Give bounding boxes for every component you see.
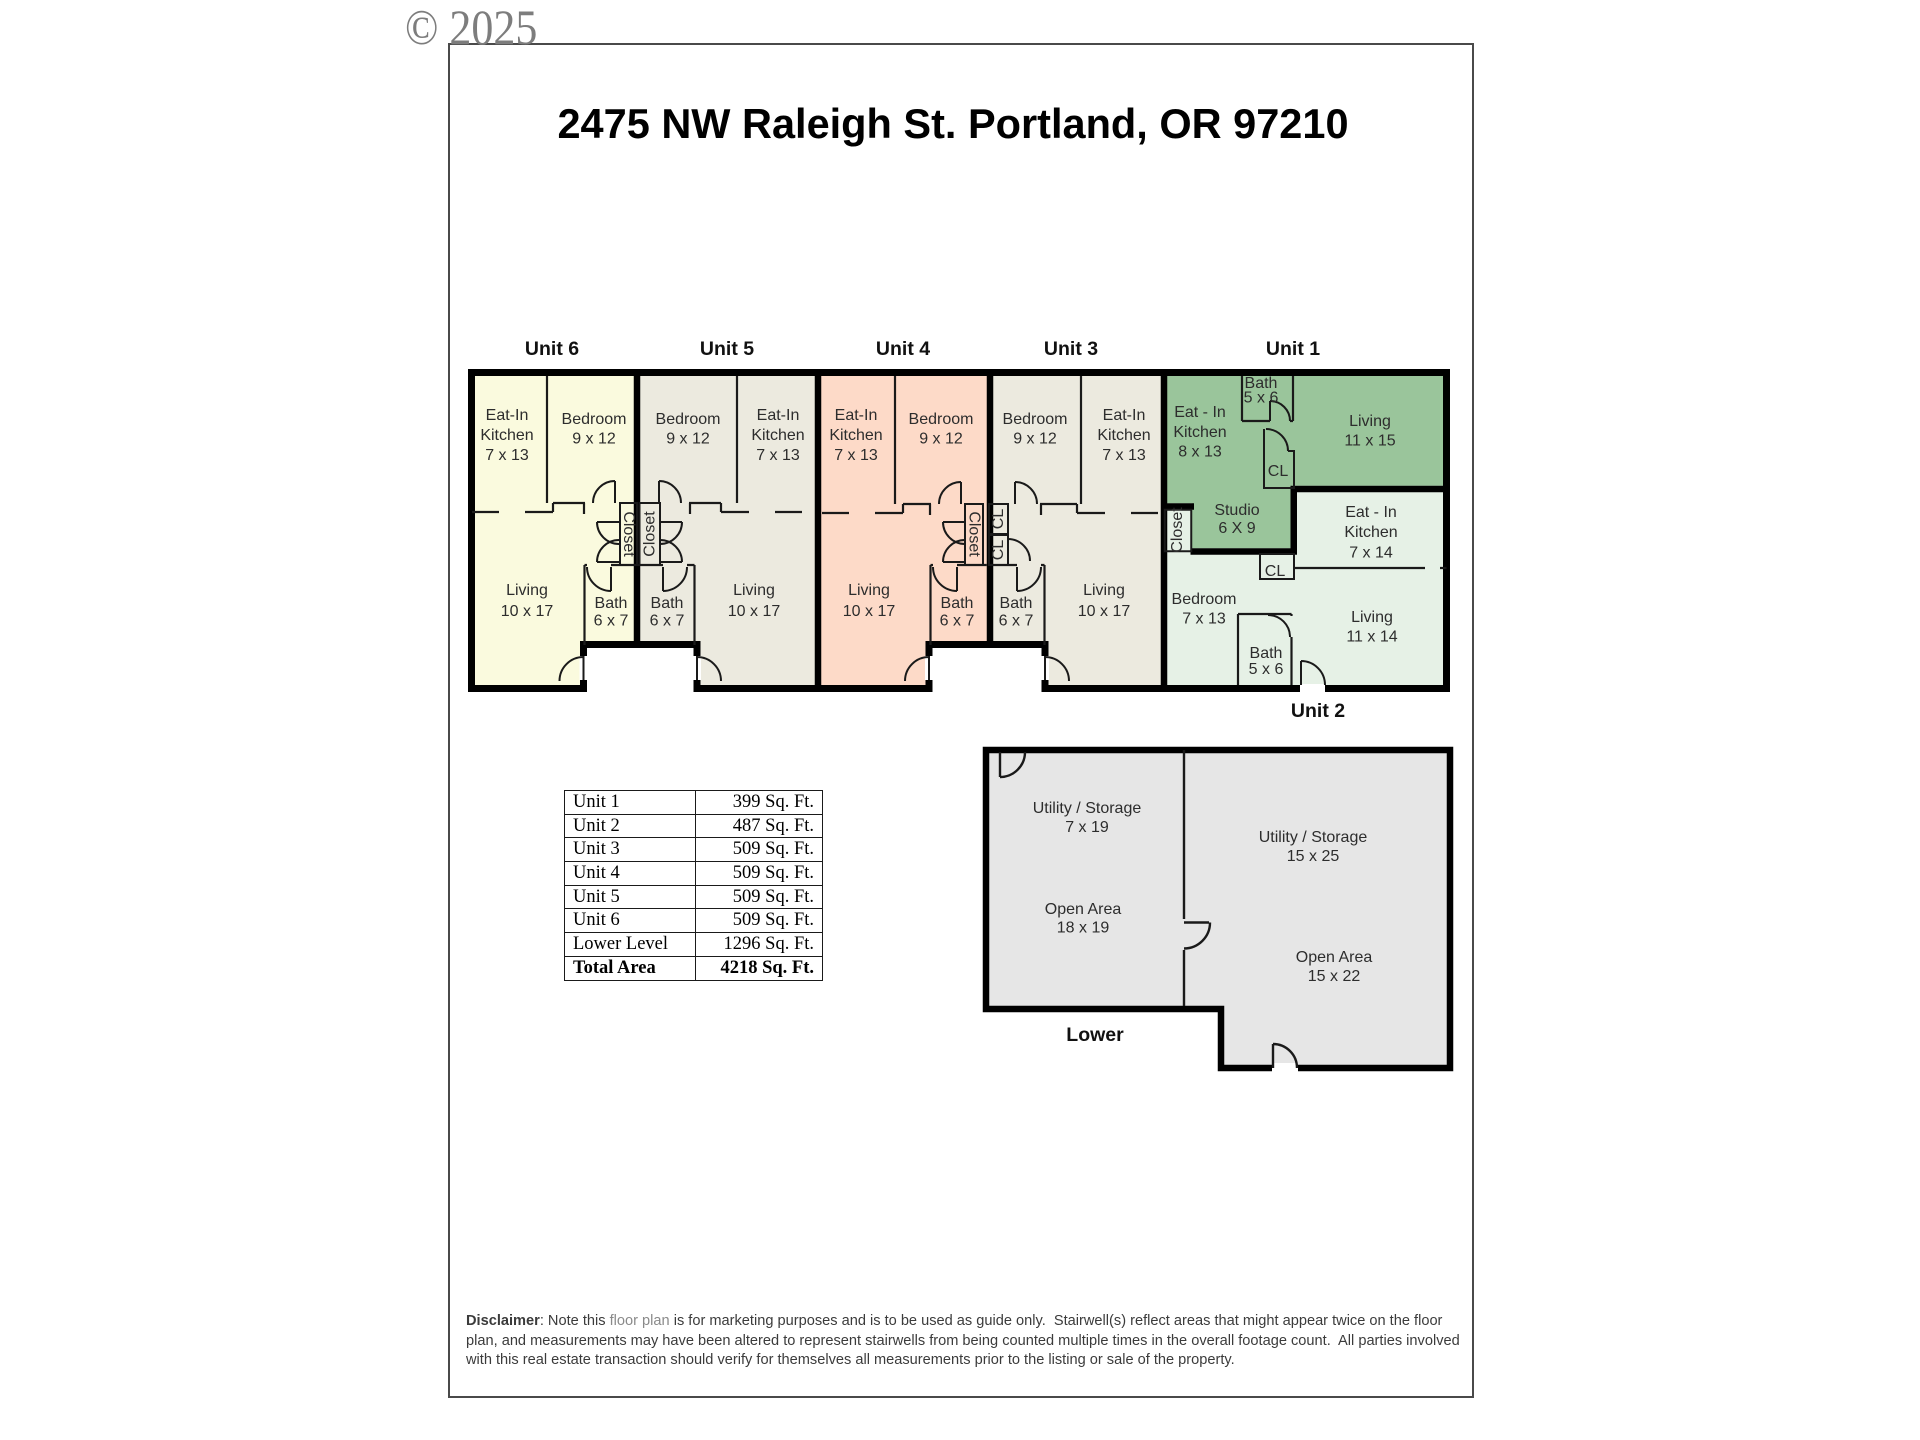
svg-text:Closet: Closet <box>1169 507 1186 553</box>
svg-text:Eat-InKitchen7 x 13: Eat-InKitchen7 x 13 <box>751 407 804 464</box>
svg-text:Eat-InKitchen7 x 13: Eat-InKitchen7 x 13 <box>480 407 533 464</box>
svg-text:Bath6 x 7: Bath6 x 7 <box>999 595 1034 630</box>
svg-text:Closet: Closet <box>966 511 983 557</box>
svg-text:Closet: Closet <box>620 511 637 557</box>
svg-text:Studio6 X 9: Studio6 X 9 <box>1214 502 1259 537</box>
svg-text:Eat-InKitchen7 x 13: Eat-InKitchen7 x 13 <box>1097 407 1150 464</box>
svg-text:Bath5 x 6: Bath5 x 6 <box>1249 645 1284 678</box>
svg-text:CL: CL <box>1268 463 1289 480</box>
svg-text:CL: CL <box>990 540 1007 561</box>
svg-text:Bath5 x 6: Bath5 x 6 <box>1244 375 1279 407</box>
svg-text:Unit 3: Unit 3 <box>1044 338 1098 360</box>
svg-text:Unit 6: Unit 6 <box>525 338 579 360</box>
svg-text:Closet: Closet <box>642 511 659 557</box>
svg-text:Unit 1: Unit 1 <box>1266 338 1320 360</box>
svg-text:Lower: Lower <box>1066 1024 1124 1046</box>
svg-text:Unit 4: Unit 4 <box>876 338 930 360</box>
svg-text:CL: CL <box>1265 563 1286 580</box>
svg-text:Eat-InKitchen7 x 13: Eat-InKitchen7 x 13 <box>829 407 882 464</box>
svg-text:Eat - InKitchen8 x 13: Eat - InKitchen8 x 13 <box>1173 404 1226 461</box>
svg-text:Unit 2: Unit 2 <box>1291 700 1345 722</box>
svg-text:Unit 5: Unit 5 <box>700 338 754 360</box>
svg-text:Bath6 x 7: Bath6 x 7 <box>594 595 629 630</box>
svg-text:Bath6 x 7: Bath6 x 7 <box>650 595 685 630</box>
svg-text:Eat - InKitchen7 x 14: Eat - InKitchen7 x 14 <box>1344 504 1397 561</box>
svg-text:CL: CL <box>990 509 1007 530</box>
svg-text:Bath6 x 7: Bath6 x 7 <box>940 595 975 630</box>
